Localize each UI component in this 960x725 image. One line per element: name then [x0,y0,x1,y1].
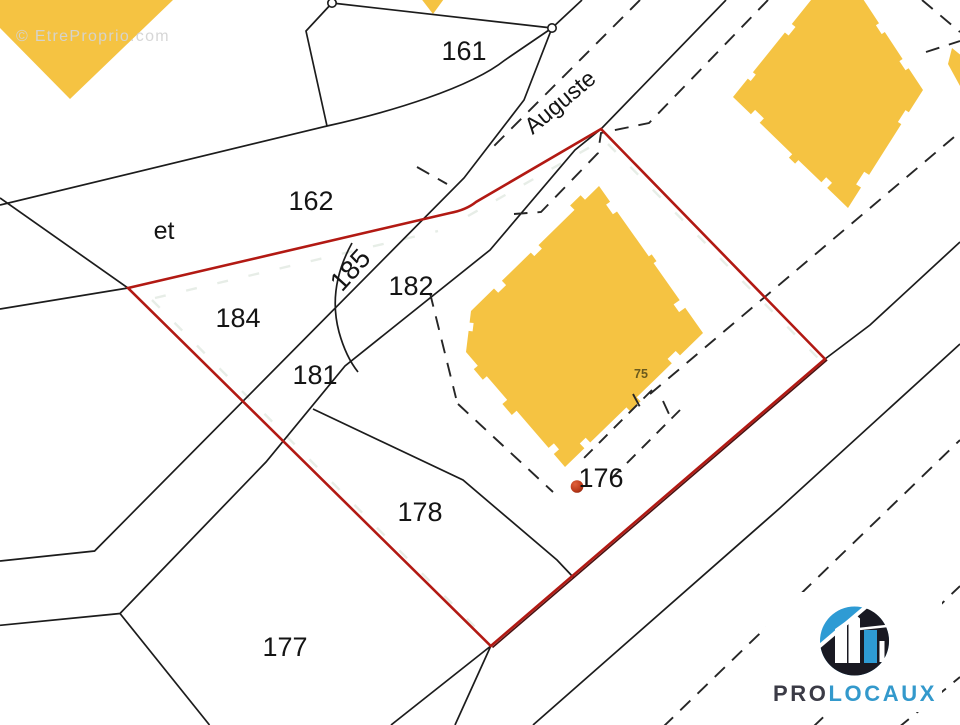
svg-text:176: 176 [578,463,623,493]
svg-text:75: 75 [634,367,648,381]
svg-text:et: et [154,217,175,245]
svg-text:181: 181 [292,360,337,390]
svg-text:177: 177 [262,632,307,662]
svg-text:PROLOCAUX: PROLOCAUX [773,681,937,706]
svg-text:161: 161 [441,36,486,66]
svg-text:© EtreProprio.com: © EtreProprio.com [16,28,170,45]
svg-text:162: 162 [288,186,333,216]
svg-text:184: 184 [215,303,260,333]
svg-text:178: 178 [397,497,442,527]
svg-text:182: 182 [388,271,433,301]
